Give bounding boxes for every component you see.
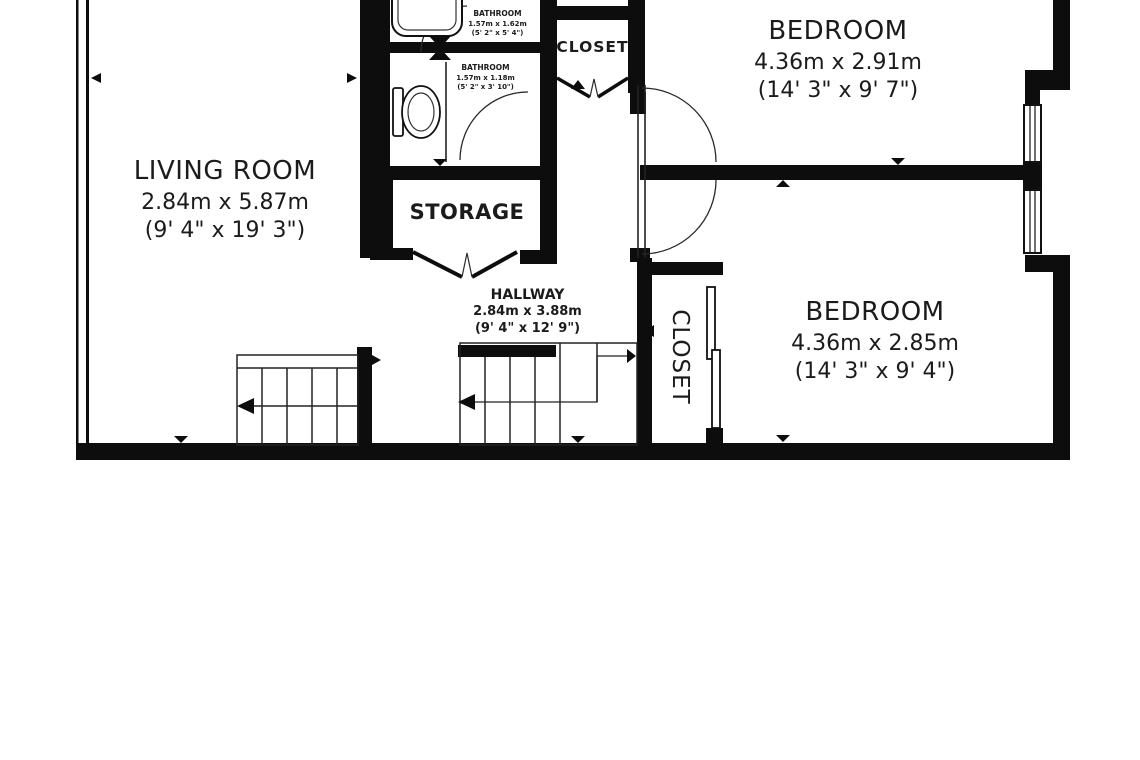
bathroom-mid-door-arc	[460, 92, 528, 160]
stairs-middle-arrow-head-right	[627, 349, 636, 363]
bedroom-top-metric: 4.36m x 2.91m	[718, 49, 958, 78]
bathroom-top-label: BATHROOM 1.57m x 1.62m (5' 2" x 5' 4")	[455, 9, 540, 39]
hallway-imperial: (9' 4" x 12' 9")	[455, 321, 600, 338]
bathroom-mid-imperial: (5' 2" x 3' 10")	[443, 83, 528, 93]
lower-closet-top-wall	[652, 262, 723, 275]
marker-storage-wall	[433, 159, 447, 166]
lower-closet-left-wall	[637, 258, 652, 447]
toilet	[393, 86, 440, 138]
bathroom-top-imperial: (5' 2" x 5' 4")	[455, 29, 540, 39]
storage-top-wall	[360, 166, 557, 180]
marker-livingroom-right	[347, 73, 357, 83]
storage-double-doors	[413, 252, 517, 277]
bedroom-bottom-label: BEDROOM 4.36m x 2.85m (14' 3" x 9' 4")	[755, 296, 995, 387]
bathtub	[392, 0, 462, 36]
marker-bottom-livingroom	[174, 436, 188, 443]
living-room-imperial: (9' 4" x 19' 3")	[105, 217, 345, 246]
lower-closet-bottom-block	[706, 428, 723, 445]
right-wall-lower	[1053, 268, 1070, 448]
marker-bottom-hallway	[571, 436, 585, 443]
living-room-label: LIVING ROOM 2.84m x 5.87m (9' 4" x 19' 3…	[105, 155, 345, 246]
marker-livingroom-left	[91, 73, 101, 83]
bathroom-mid-name: BATHROOM	[443, 63, 528, 74]
bedroom-top-name: BEDROOM	[718, 15, 958, 49]
floor-plan: LIVING ROOM 2.84m x 5.87m (9' 4" x 19' 3…	[0, 0, 1140, 760]
storage-label: STORAGE	[396, 199, 538, 226]
closet-double-doors	[557, 78, 628, 97]
living-room-metric: 2.84m x 5.87m	[105, 189, 345, 218]
marker-bedroom-bottom-wall	[776, 180, 790, 187]
hallway-name: HALLWAY	[455, 286, 600, 304]
left-wall-inner-line	[86, 0, 89, 445]
closet-top-label: CLOSET	[550, 37, 635, 57]
bedroom-bottom-name: BEDROOM	[755, 296, 995, 330]
right-wall-jog-lower	[1025, 255, 1070, 272]
bedroom-bottom-door-arc	[642, 180, 716, 254]
right-wall-upper	[1053, 0, 1070, 75]
bathroom-divider-wall	[390, 42, 545, 53]
left-wall-outer-line	[76, 0, 79, 445]
living-room-name: LIVING ROOM	[105, 155, 345, 189]
closet-side-name: CLOSET	[664, 309, 694, 404]
bedroom-divider-wall	[640, 165, 1030, 180]
bedroom-bottom-metric: 4.36m x 2.85m	[755, 330, 995, 359]
storage-bottomright-block	[520, 250, 557, 264]
storage-name: STORAGE	[396, 199, 538, 226]
marker-closet-doorway	[571, 80, 585, 89]
bedroom-top-imperial: (14' 3" x 9' 7")	[718, 77, 958, 106]
storage-left-wall	[360, 178, 393, 258]
stairs-middle	[458, 343, 637, 445]
stairs-left-arrow-head	[237, 398, 254, 414]
stairs-left	[237, 355, 358, 445]
stairs-middle-arrow-shaft	[474, 356, 627, 402]
closet-side-label: CLOSET	[664, 309, 694, 404]
hallway-label: HALLWAY 2.84m x 3.88m (9' 4" x 12' 9")	[455, 286, 600, 338]
marker-bedroom-top-wall	[891, 158, 905, 165]
bedroom-top-label: BEDROOM 4.36m x 2.91m (14' 3" x 9' 7")	[718, 15, 958, 106]
stairs-left-stub-wall	[357, 347, 372, 447]
closet-top-name: CLOSET	[550, 37, 635, 57]
bathroom-mid-metric: 1.57m x 1.18m	[443, 74, 528, 84]
bathroom-top-metric: 1.57m x 1.62m	[455, 20, 540, 30]
marker-stub-wall	[372, 355, 381, 365]
marker-bottom-bedroom	[776, 435, 790, 442]
livingroom-bathroom-wall	[360, 0, 390, 178]
bathroom-mid-label: BATHROOM 1.57m x 1.18m (5' 2" x 3' 10")	[443, 63, 528, 93]
bedroom-bottom-imperial: (14' 3" x 9' 4")	[755, 358, 995, 387]
window-upper-right	[1024, 105, 1041, 162]
closet-top-wall	[545, 6, 642, 20]
hallway-metric: 2.84m x 3.88m	[455, 304, 600, 321]
lower-closet-sliding-door	[707, 287, 720, 428]
window-lower-right	[1024, 190, 1041, 253]
bathroom-top-name: BATHROOM	[455, 9, 540, 20]
stairs-mid-top-bar	[458, 345, 556, 357]
storage-bottomleft-jamb	[370, 248, 413, 260]
bedroom-top-door-arc	[642, 88, 716, 162]
closet-left-jamb	[545, 75, 557, 93]
